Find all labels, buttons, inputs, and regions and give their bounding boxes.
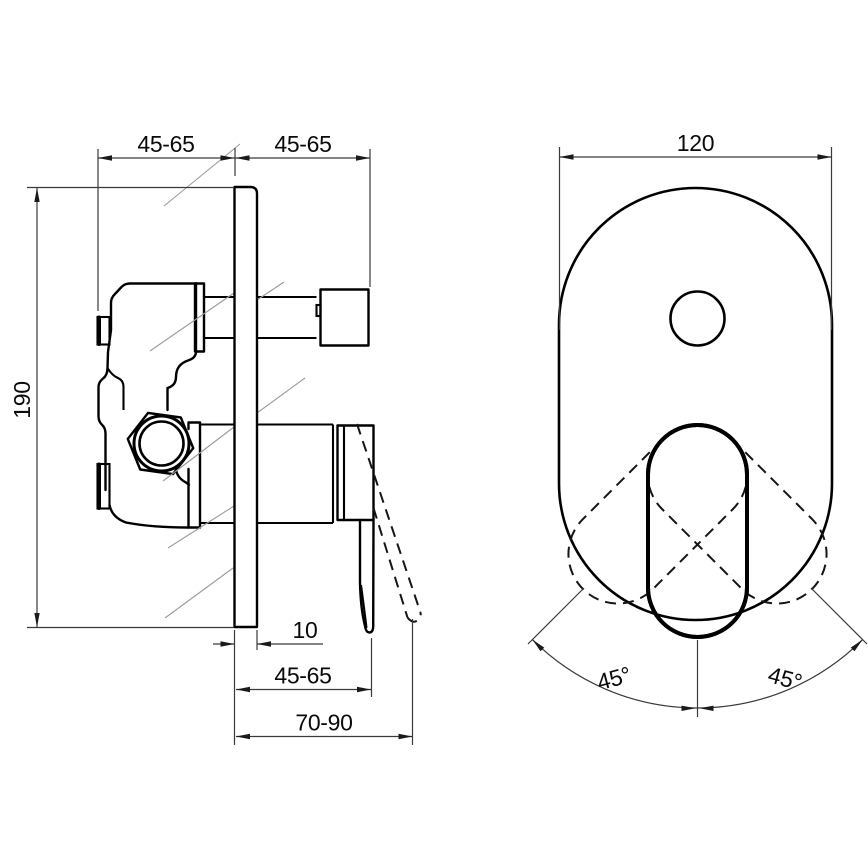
side-view-dimensions: 45-65 45-65 190 10 45-65 xyxy=(9,131,413,745)
dim-label-depth-total: 70-90 xyxy=(295,710,352,736)
connector-block xyxy=(321,290,369,346)
valve-body xyxy=(98,284,197,528)
dim-label-offset-left: 45-65 xyxy=(137,131,194,157)
handle-lever xyxy=(360,520,374,633)
dim-label-body-height: 190 xyxy=(9,381,35,418)
handle-rotated-dashed xyxy=(357,424,421,622)
cartridge-inner-circle xyxy=(140,422,184,466)
front-view: 120 45° 45° xyxy=(528,130,867,717)
side-view: 45-65 45-65 190 10 45-65 xyxy=(9,131,421,745)
dim-label-swing-left: 45° xyxy=(594,661,633,695)
dim-label-depth-inner: 45-65 xyxy=(274,663,331,689)
top-outlet-pipe xyxy=(195,284,369,352)
dim-label-offset-right: 45-65 xyxy=(274,131,331,157)
wall-plate xyxy=(235,187,258,627)
handle-swing-right-outline xyxy=(648,425,827,604)
trim-plate-oval xyxy=(559,188,832,620)
handle-front-view xyxy=(648,425,747,637)
dim-label-plate-width: 120 xyxy=(677,130,714,156)
cartridge-housing-pipe xyxy=(189,423,334,528)
dim-label-swing-right: 45° xyxy=(765,661,804,695)
cartridge-outer-circle xyxy=(134,416,189,471)
wall-hatch-lines xyxy=(150,144,305,618)
diverter-knob xyxy=(671,292,725,346)
handle-rosette xyxy=(338,426,374,521)
mixer-installation-diagram: 45-65 45-65 190 10 45-65 xyxy=(0,0,868,868)
dim-label-plate-thickness: 10 xyxy=(293,617,318,643)
handle-swing-dashed xyxy=(568,425,826,604)
technical-drawing-page: 45-65 45-65 190 10 45-65 xyxy=(0,0,868,868)
handle-side-view xyxy=(338,424,421,633)
